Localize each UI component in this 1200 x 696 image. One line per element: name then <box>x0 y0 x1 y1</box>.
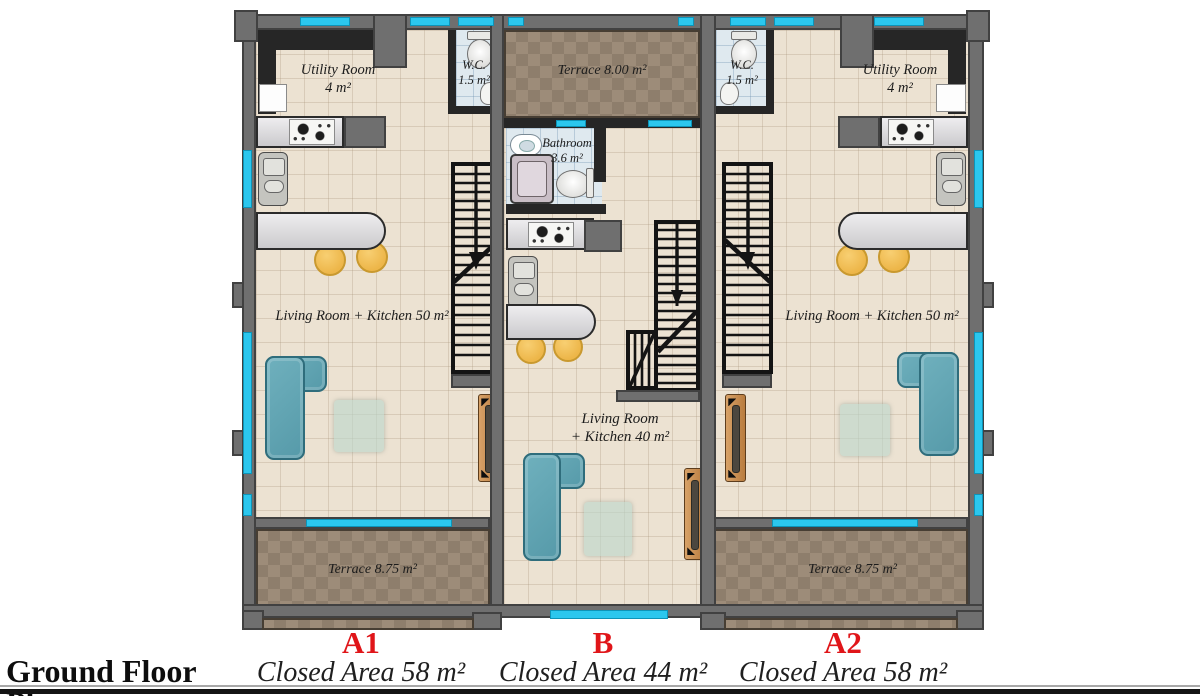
room-name: W.C. <box>718 58 766 73</box>
party-wall-a1-b <box>490 14 504 606</box>
unit-b-closed-area: Closed Area 44 m² <box>478 659 728 687</box>
outer-wall-left <box>242 14 256 622</box>
corner-block <box>700 612 726 630</box>
window <box>730 17 766 26</box>
a2-terrace-window <box>772 519 918 527</box>
a1-island-counter <box>256 212 386 250</box>
a2-sofa-icon <box>919 352 959 456</box>
b-kitchen-wall-block <box>584 220 622 252</box>
a1-stove-icon <box>289 119 335 145</box>
corner-block <box>472 612 502 630</box>
a1-wc-label: W.C. 1.5 m² <box>452 58 496 89</box>
b-toilet-icon <box>556 170 590 198</box>
a2-wc-wall-bottom <box>716 106 774 114</box>
a2-island-counter <box>838 212 968 250</box>
window <box>508 17 524 26</box>
a1-rug-icon <box>334 400 384 452</box>
room-area: 1.5 m² <box>718 73 766 88</box>
b-sofa-icon <box>523 453 561 561</box>
window <box>243 150 252 208</box>
wall-pilaster <box>982 430 994 456</box>
room-area: 4 m² <box>278 80 398 98</box>
wall-pilaster <box>982 282 994 308</box>
window <box>458 17 494 26</box>
a1-sofa-icon <box>265 356 305 460</box>
a2-rug-icon <box>840 404 890 456</box>
window <box>243 332 252 474</box>
room-name: Utility Room <box>278 62 398 80</box>
room-area: 1.5 m² <box>452 73 496 88</box>
b-bathroom-label: Bathroom 3.6 m² <box>534 136 600 167</box>
unit-a2-closed-area: Closed Area 58 m² <box>718 659 968 687</box>
a2-door-icon <box>725 394 746 482</box>
a2-stove-icon <box>888 119 934 145</box>
room-area: + Kitchen 40 m² <box>540 428 700 446</box>
window <box>300 17 350 26</box>
a2-utility-room-label: Utility Room 4 m² <box>840 62 960 97</box>
b-rug-icon <box>584 502 632 556</box>
b-stair-landing-wall <box>616 390 700 402</box>
window <box>974 150 983 208</box>
window <box>410 17 450 26</box>
unit-a1-label: A1 <box>301 627 421 658</box>
room-area: 3.6 m² <box>534 151 600 166</box>
a1-terrace-window <box>306 519 452 527</box>
room-name: Bathroom <box>534 136 600 151</box>
window <box>774 17 814 26</box>
a1-entry-wall-block <box>373 14 407 68</box>
unit-b-label: B <box>543 627 663 658</box>
b-sink-icon <box>508 256 538 308</box>
party-wall-b-a2 <box>700 14 716 606</box>
room-name: W.C. <box>452 58 496 73</box>
a1-kitchen-wall-block <box>344 116 386 148</box>
room-area: 4 m² <box>840 80 960 98</box>
a2-sink-icon <box>936 152 966 206</box>
corner-block <box>966 10 990 42</box>
floor-plan-canvas: Utility Room 4 m² W.C. 1.5 m² Living Roo… <box>0 0 1200 696</box>
corner-block <box>956 610 984 630</box>
a1-living-label: Living Room + Kitchen 50 m² <box>262 308 462 326</box>
bottom-rule <box>0 689 1200 694</box>
b-stove-icon <box>528 222 574 247</box>
a2-entry-wall-block <box>840 14 874 68</box>
b-stairs-icon <box>626 220 700 392</box>
b-living-label: Living Room + Kitchen 40 m² <box>540 410 700 447</box>
a1-sink-icon <box>258 152 288 206</box>
corner-block <box>242 610 264 630</box>
b-bathroom-window <box>648 120 692 127</box>
a2-stairs-icon <box>722 162 773 374</box>
divider-line <box>0 685 1200 687</box>
b-bathroom-window <box>556 120 586 127</box>
window <box>678 17 694 26</box>
a1-utility-room-label: Utility Room 4 m² <box>278 62 398 97</box>
corner-block <box>234 10 258 42</box>
unit-a1-closed-area: Closed Area 58 m² <box>236 659 486 687</box>
window <box>874 17 924 26</box>
room-name: Utility Room <box>840 62 960 80</box>
wall-pilaster <box>232 282 244 308</box>
a1-terrace-label: Terrace 8.75 m² <box>285 561 460 578</box>
unit-a2-label: A2 <box>783 627 903 658</box>
window <box>243 494 252 516</box>
a2-wc-wall-right <box>766 26 774 114</box>
window <box>974 494 983 516</box>
a2-living-label: Living Room + Kitchen 50 m² <box>772 308 972 326</box>
b-terrace-label: Terrace 8.00 m² <box>517 62 687 79</box>
room-name: Living Room <box>540 410 700 428</box>
b-bathroom-wall-bottom <box>506 204 606 214</box>
window <box>974 332 983 474</box>
b-island-counter <box>506 304 596 340</box>
a2-terrace-label: Terrace 8.75 m² <box>765 561 940 578</box>
b-toilet-icon <box>586 168 594 198</box>
a2-kitchen-wall-block <box>838 116 880 148</box>
a2-wc-label: W.C. 1.5 m² <box>718 58 766 89</box>
a2-stair-landing-wall <box>722 374 772 388</box>
b-rear-window <box>550 610 668 619</box>
